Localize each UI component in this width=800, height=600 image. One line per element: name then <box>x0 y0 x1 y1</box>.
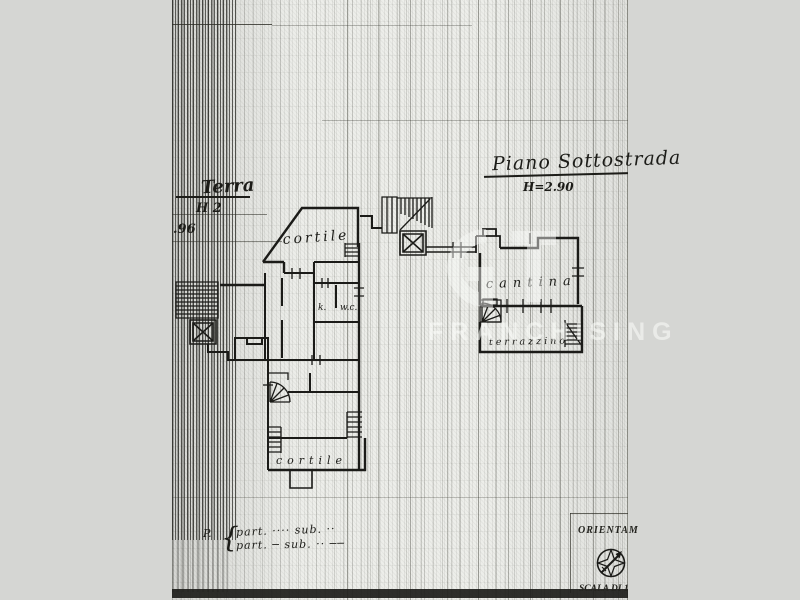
label-kitchen: k. <box>318 303 326 313</box>
main-staircase-hatch <box>176 282 265 318</box>
ground-title-underline <box>176 196 250 198</box>
connector-wall <box>360 216 382 228</box>
basement-elevator-icon <box>400 231 426 255</box>
cadastral-row2: part. ─ sub. ·· ── <box>236 537 345 552</box>
label-wc: w.c. <box>340 303 358 313</box>
compass-rose-icon <box>598 550 625 577</box>
spiral-staircase-icon <box>268 373 290 402</box>
watermark-text: FRANCHISING <box>428 318 728 347</box>
orientation-label: ORIENTAM <box>578 525 639 536</box>
ground-floor-plan <box>176 208 365 488</box>
scanned-floor-plan-photo: cortile k. w.c. cortile cantina terrazzi… <box>0 0 800 600</box>
floor-plan-drawing: cortile k. w.c. cortile cantina terrazzi… <box>0 0 800 600</box>
ground-height-top: H 2 <box>196 201 222 216</box>
watermark-logo <box>428 222 568 314</box>
cadastral-prefix: P. <box>203 527 212 540</box>
elevator-shaft-icon <box>190 320 216 344</box>
label-courtyard-lower: cortile <box>276 454 347 467</box>
stair-treads-left <box>268 427 281 453</box>
label-courtyard-upper: cortile <box>282 227 350 248</box>
scale-label: SCALA DI 1 <box>579 584 629 594</box>
small-stairs-icon <box>345 243 358 257</box>
basement-staircase-icon <box>382 197 432 233</box>
lower-left-walls <box>208 338 268 360</box>
basement-height-note: H=2.90 <box>523 180 574 194</box>
ground-height-bottom: .96 <box>173 222 196 237</box>
ground-title: Terra <box>200 175 254 199</box>
